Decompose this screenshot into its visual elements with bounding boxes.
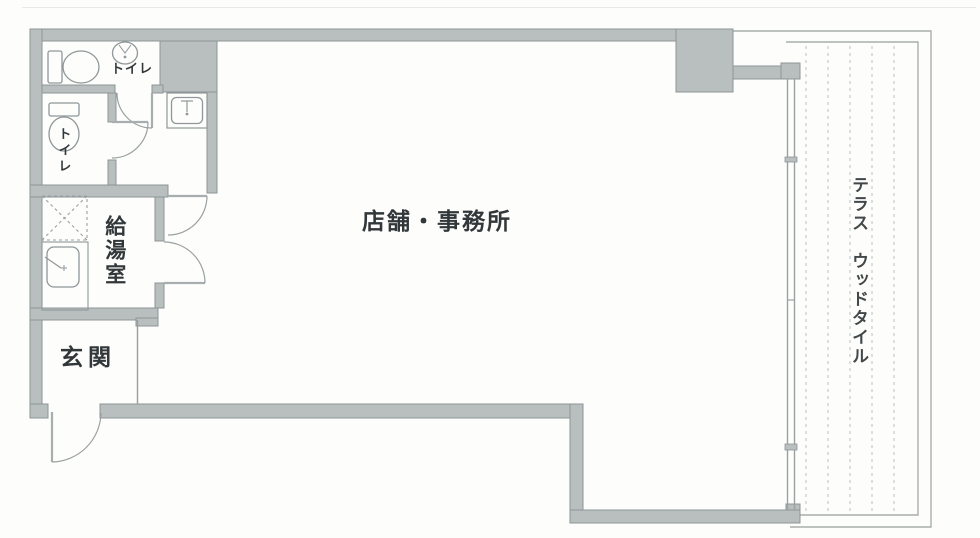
wall-toilet-top-bottom-a xyxy=(42,85,115,93)
toilet-top-label: トイレ xyxy=(111,62,153,77)
main-room-label: 店舗・事務所 xyxy=(362,209,512,236)
sliding-window-icon xyxy=(785,79,797,510)
wall-kitchenette-right-b xyxy=(155,283,164,308)
wall-left xyxy=(30,29,42,418)
floor-plan: トイレ トイレ 給湯室 玄関 店舗・事務所 テラス ウッドタイル xyxy=(0,0,980,538)
hand-basin-icon xyxy=(113,42,138,64)
kitchenette-door xyxy=(164,242,205,283)
entrance-door xyxy=(52,412,101,462)
kitchen-sink-icon xyxy=(42,242,88,310)
entrance-label: 玄関 xyxy=(60,345,116,372)
wall-sanitary-right xyxy=(207,92,217,193)
wall-terrace-arm xyxy=(733,66,786,79)
wall-kitchenette-right-a xyxy=(155,197,164,241)
wall-top xyxy=(30,29,733,41)
wall-bottom-right xyxy=(570,510,800,523)
wall-bottom-left xyxy=(100,404,583,418)
wash-basin-icon xyxy=(167,93,207,128)
wall-toilet-top-bottom-b xyxy=(152,85,163,93)
floor-plan-drawing xyxy=(0,0,980,538)
door-swing-arc xyxy=(168,196,207,235)
terrace-label: テラス ウッドタイル xyxy=(848,176,868,366)
wall-toilet-left-divider-b xyxy=(108,160,116,187)
door-swing-arc xyxy=(164,242,205,283)
wall-bottom-left-stub xyxy=(30,404,48,418)
wall-shaft-block xyxy=(160,41,217,92)
toilet-icon xyxy=(48,51,99,83)
wall-top-right-block xyxy=(676,29,733,92)
sliding-door-top-cap xyxy=(781,63,800,79)
wall-step xyxy=(570,404,583,523)
terrace-outline xyxy=(733,31,931,527)
toilet-left-label: トイレ xyxy=(55,127,70,175)
terrace-outer-border xyxy=(733,31,931,527)
kitchenette-label: 給湯室 xyxy=(102,215,127,287)
structural-walls xyxy=(30,29,800,523)
wall-entrance-corner xyxy=(136,318,158,326)
washroom-door xyxy=(168,196,207,235)
wall-toilet-left-divider-a xyxy=(108,93,116,122)
wall-sanitary-bottom xyxy=(30,185,168,197)
water-heater-hatch-icon xyxy=(42,196,87,240)
door-swing-arc xyxy=(52,413,101,462)
